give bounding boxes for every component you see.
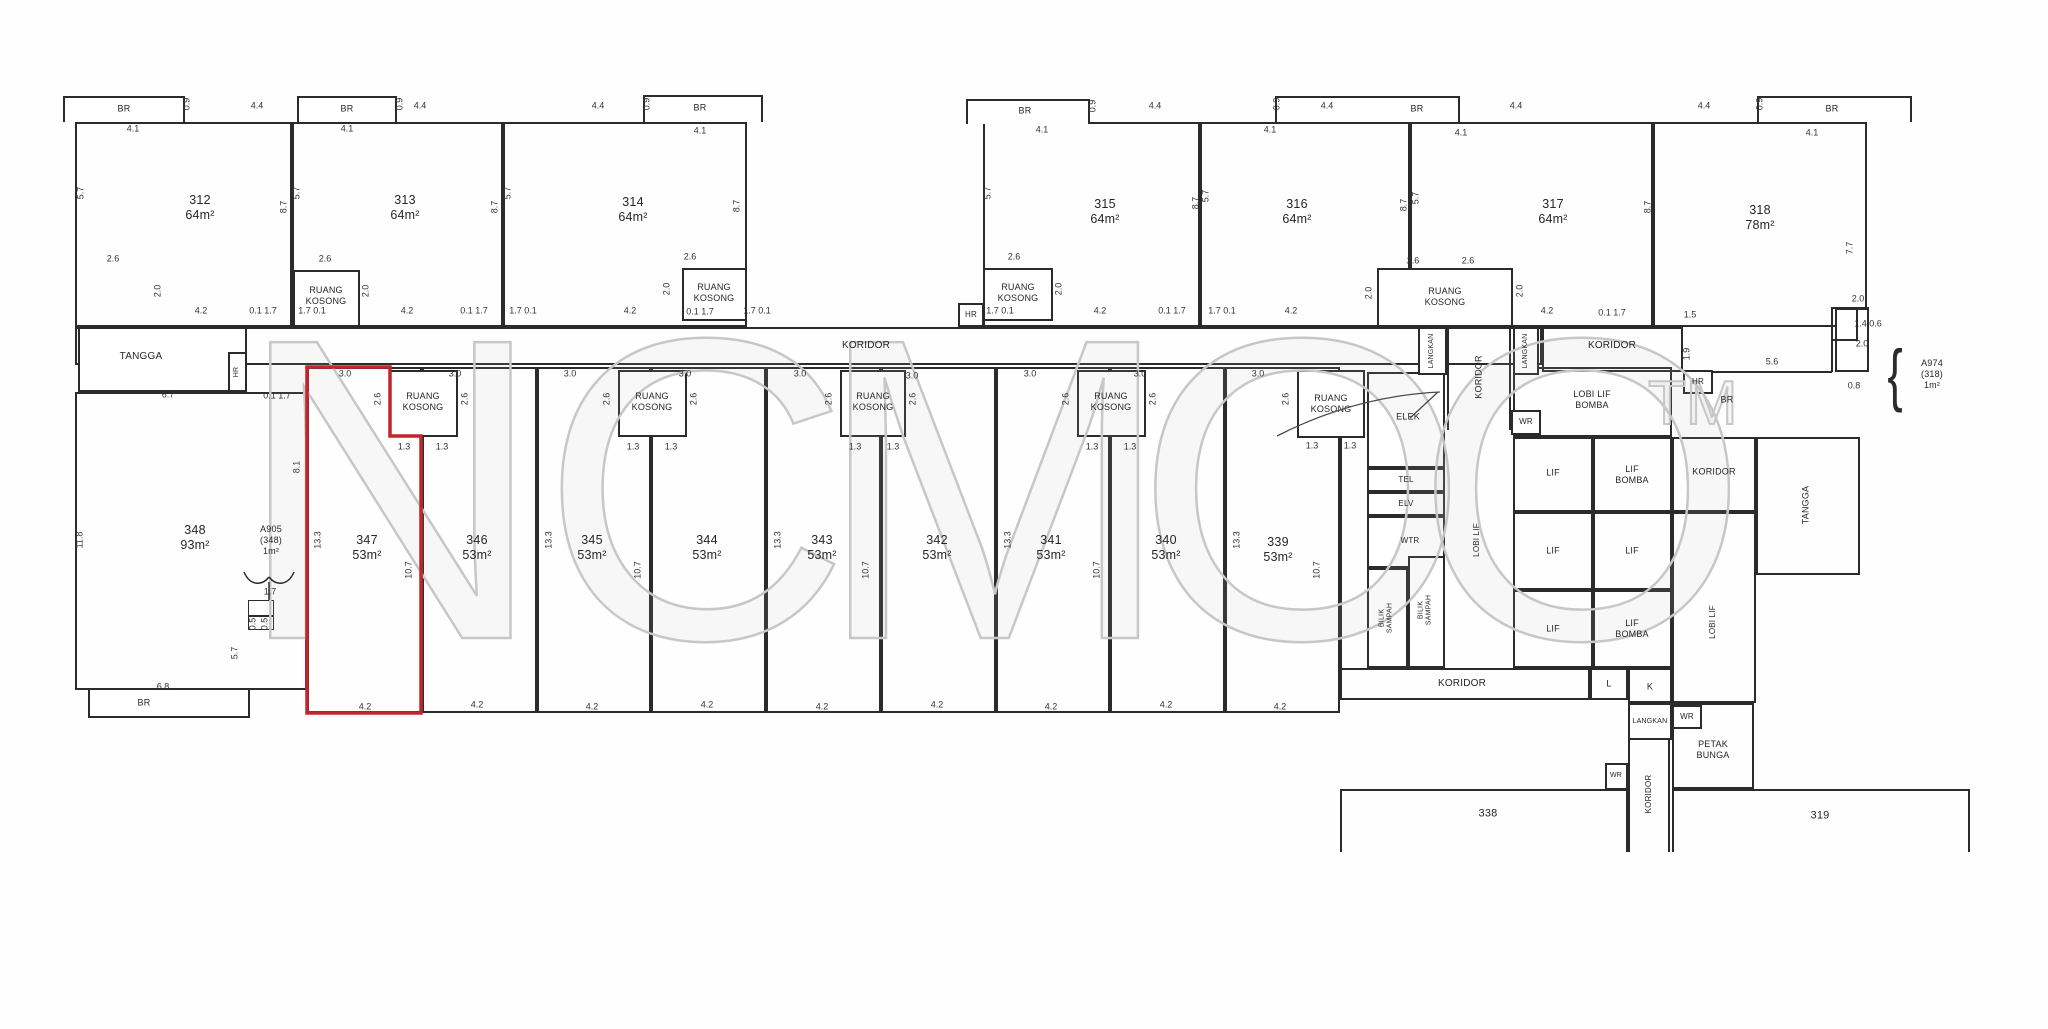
dimension-label: 7.7 — [1846, 242, 1855, 255]
dimension-label: 4.4 — [251, 102, 264, 111]
dimension-label: 1.7 0.1 — [509, 307, 537, 316]
dimension-label: 4.4 — [1321, 102, 1334, 111]
ruang-kosong-label: RUANG KOSONG — [403, 391, 444, 413]
dimension-label: 13.3 — [774, 531, 783, 549]
dimension-label: 1.3 — [398, 443, 411, 452]
dimension-label: 8.7 — [280, 201, 289, 214]
balcony-label: BR — [694, 103, 707, 114]
lif-label: LIF — [1546, 546, 1560, 557]
unit-312-room — [75, 122, 292, 327]
dimension-label: 0.1 1.7 — [1598, 309, 1626, 318]
k-label: K — [1647, 682, 1653, 693]
dimension-label: 4.1 — [127, 125, 140, 134]
dimension-label: 4.2 — [1285, 307, 1298, 316]
dimension-label: 0.1 1.7 — [460, 307, 488, 316]
dimension-label: 2.6 — [374, 393, 383, 406]
dimension-label: 4.2 — [1094, 307, 1107, 316]
dimension-label: 1.7 0.1 — [298, 307, 326, 316]
dimension-label: 2.0 — [1365, 287, 1374, 300]
dimension-label: 5.7 — [293, 187, 302, 200]
dimension-label: 0.1 1.7 — [249, 307, 277, 316]
a974-callout: A974 (318) 1m² — [1921, 358, 1943, 390]
unit-316-label: 316 64m² — [1282, 197, 1311, 227]
tel-label: TEL — [1398, 475, 1413, 485]
dimension-label: 1.3 — [887, 443, 900, 452]
dimension-label: 2.6 — [690, 393, 699, 406]
ruang-kosong-label: RUANG KOSONG — [632, 391, 673, 413]
unit-340-label: 340 53m² — [1151, 533, 1180, 563]
dimension-label: 1.7 0.1 — [743, 307, 771, 316]
dimension-label: 2.6 — [1462, 257, 1475, 266]
balcony-label: BR — [341, 104, 354, 115]
dimension-label: 1.7 0.1 — [1208, 307, 1236, 316]
bilik-sampah-label: BILIK SAMPAH — [1379, 603, 1396, 633]
dimension-label: 3.0 — [906, 372, 919, 381]
dimension-label: 2.6 — [1149, 393, 1158, 406]
dimension-label: 2.6 — [461, 393, 470, 406]
lobi-lif-label: LOBI LIF — [1708, 605, 1718, 639]
dimension-label: 4.2 — [1541, 307, 1554, 316]
dimension-label: 4.4 — [1149, 102, 1162, 111]
dimension-label: 2.0 — [1055, 283, 1064, 296]
dimension-label: 4.2 — [1045, 703, 1058, 712]
elv-label: ELV — [1398, 499, 1413, 509]
dimension-label: 4.4 — [414, 102, 427, 111]
dimension-label: 6.8 — [157, 683, 170, 692]
dimension-label: 5.6 — [1766, 358, 1779, 367]
unit-315-label: 315 64m² — [1090, 197, 1119, 227]
dimension-label: 4.2 — [586, 703, 599, 712]
hr-label: HR — [233, 367, 241, 378]
tangga-label: TANGGA — [120, 351, 163, 363]
dimension-label: 8.7 — [1644, 201, 1653, 214]
dimension-label: 8.7 — [1400, 199, 1409, 212]
koridor-label: KORIDOR — [1692, 467, 1735, 478]
dimension-label: 13.3 — [1233, 531, 1242, 549]
unit-345-label: 345 53m² — [577, 533, 606, 563]
dimension-label: 3.0 — [679, 370, 692, 379]
dimension-label: 1.5 — [1684, 311, 1697, 320]
dimension-label: 1.7 — [264, 588, 277, 597]
bilik-sampah-label: BILIK SAMPAH — [1418, 595, 1435, 625]
dimension-label: 2.0 — [362, 285, 371, 298]
dimension-label: 4.2 — [816, 703, 829, 712]
dimension-label: 13.3 — [314, 531, 323, 549]
dimension-label: 0.1 1.7 — [686, 308, 714, 317]
balcony-label: BR — [138, 698, 151, 709]
ruang-kosong-label: RUANG KOSONG — [1425, 286, 1466, 308]
floor-plan-scan: N C M O O TM 312 64m²313 64m²314 64m²315… — [0, 0, 2048, 1029]
dimension-label: 4.2 — [1160, 701, 1173, 710]
koridor-label: KORIDOR — [1588, 340, 1636, 352]
dimension-label: 5.7 — [231, 647, 240, 660]
balcony-tab — [88, 690, 250, 718]
dimension-label: 1.3 — [1124, 443, 1137, 452]
dimension-label: 1.4 0.6 — [1854, 320, 1882, 329]
ruang-kosong-label: RUANG KOSONG — [306, 285, 347, 307]
dimension-label: 0.5 — [249, 618, 258, 631]
dimension-label: 4.2 — [401, 307, 414, 316]
dimension-label: 1.3 — [1344, 442, 1357, 451]
petak-bunga-label: PETAK BUNGA — [1696, 739, 1729, 761]
dimension-label: 1.7 0.1 — [986, 307, 1014, 316]
balcony-tab — [1275, 96, 1460, 122]
dimension-label: 5.7 — [984, 187, 993, 200]
hr-label: HR — [965, 310, 977, 320]
dimension-label: 13.3 — [545, 531, 554, 549]
dimension-label: 2.6 — [825, 393, 834, 406]
unit-348-label: 348 93m² — [180, 523, 209, 553]
unit-312-label: 312 64m² — [185, 193, 214, 223]
dimension-label: 2.0 — [1516, 285, 1525, 298]
dimension-label: 0.1 1.7 — [263, 392, 291, 401]
dimension-label: 3.0 — [339, 370, 352, 379]
wall-line — [1713, 371, 1832, 373]
unit-342-label: 342 53m² — [922, 533, 951, 563]
dimension-label: 5.7 — [504, 187, 513, 200]
koridor-label: KORIDOR — [1644, 775, 1654, 814]
dimension-label: 4.2 — [624, 307, 637, 316]
dimension-label: 0.1 1.7 — [1158, 307, 1186, 316]
unit-346-label: 346 53m² — [462, 533, 491, 563]
unit-319-label: 319 — [1811, 809, 1830, 822]
wr-label: WR — [1519, 417, 1533, 427]
dimension-label: 0.9 — [183, 98, 192, 111]
langkan-label: LANGKAN — [1428, 334, 1436, 369]
unit-341-label: 341 53m² — [1036, 533, 1065, 563]
balcony-label: BR — [1411, 104, 1424, 115]
dimension-label: 0.9 — [396, 98, 405, 111]
ruang-kosong-label: RUANG KOSONG — [853, 391, 894, 413]
dimension-label: 4.1 — [694, 127, 707, 136]
dimension-label: 10.7 — [1093, 561, 1102, 579]
ruang-kosong-label: RUANG KOSONG — [1091, 391, 1132, 413]
dimension-label: 10.7 — [1313, 561, 1322, 579]
dimension-label: 2.6 — [1008, 253, 1021, 262]
unit-343-label: 343 53m² — [807, 533, 836, 563]
dimension-label: 8.7 — [733, 200, 742, 213]
hr-label: HR — [1692, 377, 1704, 387]
dimension-label: 3.0 — [564, 370, 577, 379]
lif-label: LIF — [1546, 624, 1560, 635]
unit-314-label: 314 64m² — [618, 195, 647, 225]
balcony-label: BR — [1826, 104, 1839, 115]
koridor-label: KORIDOR — [1438, 678, 1486, 690]
langkan-label: LANGKAN — [1633, 718, 1668, 726]
dimension-label: 2.6 — [909, 393, 918, 406]
dimension-label: 0.9 — [1089, 100, 1098, 113]
dimension-label: 4.1 — [1264, 126, 1277, 135]
dimension-label: 3.0 — [794, 370, 807, 379]
dimension-label: 1.9 — [1683, 348, 1692, 361]
wall-line — [1340, 438, 1342, 668]
dimension-label: 4.2 — [195, 307, 208, 316]
dimension-label: 0.5 — [261, 618, 270, 631]
dimension-label: 10.7 — [405, 561, 414, 579]
dimension-label: 2.6 — [1062, 393, 1071, 406]
dimension-label: 5.7 — [1202, 190, 1211, 203]
dimension-label: 5.7 — [1412, 192, 1421, 205]
dimension-label: 1.3 — [1086, 443, 1099, 452]
dimension-label: 4.2 — [359, 703, 372, 712]
main-corridor — [75, 327, 1542, 365]
dimension-label: 10.7 — [862, 561, 871, 579]
dimension-label: 3.0 — [1252, 370, 1265, 379]
balcony-label: BR — [118, 104, 131, 115]
dimension-label: 8.7 — [1192, 197, 1201, 210]
dimension-label: 2.0 — [1852, 295, 1865, 304]
unit-338-label: 338 — [1479, 807, 1498, 820]
a974-brace: { — [1887, 334, 1902, 415]
dimension-label: 0.9 — [1756, 98, 1765, 111]
dimension-label: 8.7 — [491, 201, 500, 214]
unit-339-label: 339 53m² — [1263, 535, 1292, 565]
dimension-label: 11.8 — [76, 532, 85, 549]
elek-label: ELEK — [1396, 412, 1420, 423]
dimension-label: 2.6 — [603, 393, 612, 406]
lif-label: LIF — [1546, 468, 1560, 479]
dimension-label: 4.1 — [1455, 129, 1468, 138]
dimension-label: 4.4 — [592, 102, 605, 111]
ruang-kosong-label: RUANG KOSONG — [694, 282, 735, 304]
dimension-label: 3.0 — [1134, 370, 1147, 379]
dimension-label: 2.0 — [1856, 340, 1869, 349]
dimension-label: 4.1 — [1036, 126, 1049, 135]
dimension-label: 3.0 — [449, 370, 462, 379]
dimension-label: 13.3 — [1004, 531, 1013, 549]
dimension-label: 1.3 — [436, 443, 449, 452]
dimension-label: 1.3 — [849, 443, 862, 452]
dimension-label: 1.3 — [1306, 442, 1319, 451]
unit-347-label: 347 53m² — [352, 533, 381, 563]
balcony-label: BR — [1019, 106, 1032, 117]
lobi-lif-label: LOBI LIF — [1472, 523, 1482, 557]
dimension-label: 10.7 — [634, 561, 643, 579]
dimension-label: 4.1 — [341, 125, 354, 134]
door-fixture — [248, 600, 274, 616]
tangga-label: TANGGA — [1801, 486, 1812, 525]
koridor-label: KORIDOR — [1474, 355, 1485, 398]
unit-318-label: 318 78m² — [1745, 203, 1774, 233]
dimension-label: 4.4 — [1510, 102, 1523, 111]
dimension-label: 0.8 — [1848, 382, 1861, 391]
dimension-label: 2.6 — [319, 255, 332, 264]
dimension-label: 3.0 — [1024, 370, 1037, 379]
br-label: BR — [1721, 395, 1734, 406]
lobi-lif-bomba-label: LOBI LIF BOMBA — [1573, 389, 1611, 411]
lif-label: LIF — [1625, 546, 1639, 557]
wr-label: WR — [1610, 772, 1622, 780]
dimension-label: 2.6 — [1407, 257, 1420, 266]
dimension-label: 2.6 — [1282, 393, 1291, 406]
unit-344-label: 344 53m² — [692, 533, 721, 563]
unit-313-label: 313 64m² — [390, 193, 419, 223]
l-label: L — [1606, 679, 1611, 690]
a905-callout: A905 (348) 1m² — [260, 524, 282, 556]
dimension-label: 4.4 — [1698, 102, 1711, 111]
ruang-kosong-label: RUANG KOSONG — [1311, 393, 1352, 415]
wtr-label: WTR — [1401, 536, 1420, 546]
unit-317-label: 317 64m² — [1538, 197, 1567, 227]
dimension-label: 0.9 — [643, 98, 652, 111]
dimension-label: 5.7 — [77, 187, 86, 200]
ruang-kosong-label: RUANG KOSONG — [998, 282, 1039, 304]
koridor-label: KORIDOR — [842, 340, 890, 352]
langkan-label: LANGKAN — [1522, 334, 1530, 369]
dimension-label: 4.2 — [931, 701, 944, 710]
dimension-label: 4.2 — [471, 701, 484, 710]
dimension-label: 2.0 — [154, 285, 163, 298]
dimension-label: 6.7 — [162, 391, 175, 400]
wr-label: WR — [1680, 712, 1694, 722]
lif-bomba-label: LIF BOMBA — [1615, 464, 1649, 486]
dimension-label: 2.0 — [663, 283, 672, 296]
dimension-label: 2.6 — [684, 253, 697, 262]
dimension-label: 4.2 — [701, 701, 714, 710]
dimension-label: 4.2 — [1274, 703, 1287, 712]
dimension-label: 2.6 — [107, 255, 120, 264]
dimension-label: 8.1 — [293, 461, 302, 474]
dimension-label: 1.3 — [665, 443, 678, 452]
lif-bomba-label: LIF BOMBA — [1615, 618, 1649, 640]
dimension-label: 1.3 — [627, 443, 640, 452]
dimension-label: 4.1 — [1806, 129, 1819, 138]
dimension-label: 0.9 — [1273, 98, 1282, 111]
